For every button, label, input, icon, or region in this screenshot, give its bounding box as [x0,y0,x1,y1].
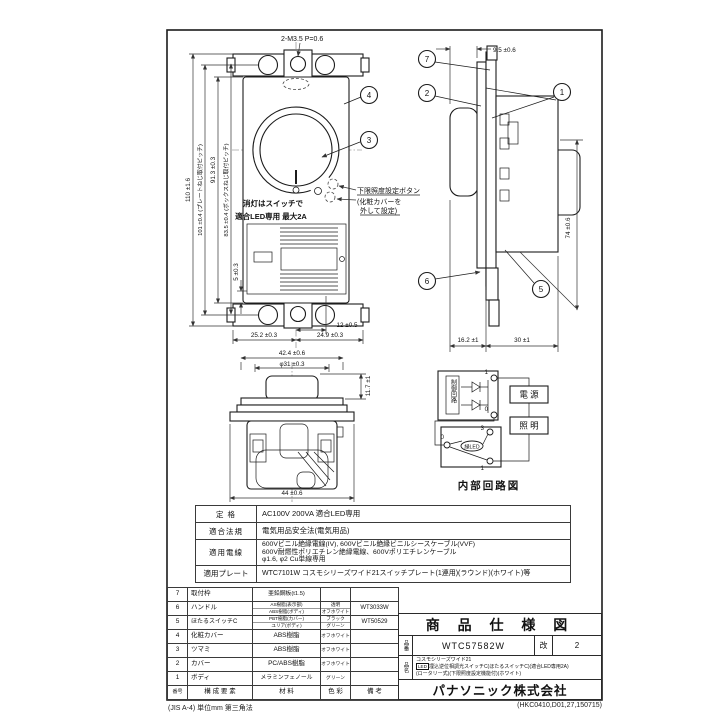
dim-label-phi31: φ31 ±0.3 [279,361,305,368]
control-box [438,371,498,420]
spec-label: 定 格 [196,506,257,523]
parts-header-row: 番号 構 成 要 素 材 料 色 彩 備 考 [168,686,399,700]
parts-header-color: 色 彩 [321,686,351,700]
footer-left: (JIS A-4) 単位mm 第三角法 [168,703,253,713]
note-line-3: 外して設定) [360,206,397,215]
product-name-row: 品名 コスモシリーズワイド21 LED埋込逆位相調光スイッチC(ほたるスイッチC… [399,656,601,680]
parts-row: 5 ほたるスイッチC PBT樹脂(カバー) ユリア(ボディ) ブラック グリーン… [168,616,399,630]
part-remark [351,644,399,658]
dim-label-424: 42.4 ±0.6 [279,350,306,357]
svg-text:3: 3 [367,136,372,145]
part-number-row: 品番 WTC57582W 改 2 [399,636,601,656]
knob-dome [266,376,318,400]
spec-value: WTC7101W コスモシリーズワイド21スイッチプレート(1連用)(ラウンド)… [257,565,571,582]
part-color: オフホワイト [321,658,351,672]
part-name: ツマミ [188,644,253,658]
led-tag: LED [416,663,429,670]
svg-text:7: 7 [425,55,430,64]
part-remark [351,672,399,686]
part-num: 4 [168,630,188,644]
spec-row: 定 格 AC100V 200VA 適合LED専用 [196,506,571,523]
device-label-led: 適合LED専用 最大2A [235,211,307,221]
dim-label-249: 24.9 ±0.3 [317,332,344,339]
plate-profile [477,62,486,268]
body-profile [496,96,558,252]
dim-label-12: 12 ±0.5 [337,322,358,329]
product-name: コスモシリーズワイド21 LED埋込逆位相調光スイッチC(ほたるスイッチC)(適… [413,656,601,679]
spec-label: 適用電線 [196,540,257,566]
part-color: ブラック グリーン [321,616,351,630]
part-color [321,588,351,602]
part-material: ABS樹脂 [253,644,321,658]
parts-row: 7 取付枠 亜鉛鋼板(t1.5) [168,588,399,602]
side-view: 9.5 ±0.6 74 ±0.6 16.2 ±1 30 ±1 7 [419,46,584,352]
part-num: 5 [168,616,188,630]
part-material: 亜鉛鋼板(t1.5) [253,588,321,602]
part-material: AS樹脂(表示部) ABS樹脂(ボディ) [253,602,321,616]
part-name: ハンドル [188,602,253,616]
parts-header-name: 構 成 要 素 [188,686,253,700]
spec-value-line: 600Vビニル絶縁電線(IV), 600Vビニル絶縁ビニルシースケーブル(VVF… [262,541,569,549]
spec-row: 適合法規 電気用品安全法(電気用品) [196,523,571,540]
part-remark [351,630,399,644]
frame-profile [486,52,496,286]
svg-text:4: 4 [367,91,372,100]
part-material: PC/ABS樹脂 [253,658,321,672]
drawing-title: 商 品 仕 様 図 [399,614,601,636]
control-label: 制御回路 [450,378,457,404]
parts-header-material: 材 料 [253,686,321,700]
dim-label-44: 44 ±0.6 [282,490,303,497]
dim-label-95: 9.5 ±0.6 [493,47,516,54]
part-num: 2 [168,658,188,672]
device-label-off: 消灯はスイッチで [243,198,303,208]
spec-value: AC100V 200VA 適合LED専用 [257,506,571,523]
spec-row: 適用電線 600Vビニル絶縁電線(IV), 600Vビニル絶縁ビニルシースケーブ… [196,540,571,566]
side-dim-95: 9.5 ±0.6 [436,46,516,104]
knob-profile [450,108,478,196]
part-number-label: 品番 [399,636,413,655]
parts-row: 4 化粧カバー ABS樹脂 オフホワイト [168,630,399,644]
part-color: オフホワイト [321,644,351,658]
dim-label-74: 74 ±0.6 [565,217,572,238]
part-remark [351,588,399,602]
part-name: ボディ [188,672,253,686]
terminal-0b-label: 0 [441,435,445,441]
part-num: 7 [168,588,188,602]
dim-label-835: 83.5 ±0.4 (ボックスねじ取付ピッチ) [222,143,230,236]
parts-row: 2 カバー PC/ABS樹脂 オフホワイト [168,658,399,672]
part-num: 6 [168,602,188,616]
callout-6: 6 [419,272,481,290]
revision-value: 2 [553,636,601,655]
part-name: カバー [188,658,253,672]
spec-label: 適合法規 [196,523,257,540]
part-remark: WT3033W [351,602,399,616]
product-name-line2: LED埋込逆位相調光スイッチC(ほたるスイッチC)(適合LED専用2A) [416,663,601,671]
company-name: パナソニック株式会社 [399,680,601,699]
note-line-1: 下限照度設定ボタン [357,186,420,195]
dim-label-252: 25.2 ±0.3 [251,332,278,339]
part-num: 1 [168,672,188,686]
part-remark: WT50529 [351,616,399,630]
part-color: グリーン [321,672,351,686]
circuit-diagram: 制御回路 1 0 3 1 0 緑LED 電 源 照 明 内部回路図 [435,370,548,492]
product-name-line3: (ロータリー式)(下限照度設定機能付)(ホワイト) [416,671,601,678]
spec-row: 適用プレート WTC7101W コスモシリーズワイド21スイッチプレート(1連用… [196,565,571,582]
svg-text:6: 6 [425,277,430,286]
part-color: オフホワイト [321,630,351,644]
parts-row: 6 ハンドル AS樹脂(表示部) ABS樹脂(ボディ) 透明 オフホワイト WT… [168,602,399,616]
dim-label-913: 91.3 ±0.3 [210,156,217,183]
title-block: 商 品 仕 様 図 品番 WTC57582W 改 2 品名 コスモシリーズワイド… [398,613,602,700]
part-material: ABS樹脂 [253,630,321,644]
parts-row: 1 ボディ メラミンフェノール グリーン [168,672,399,686]
part-name: 化粧カバー [188,630,253,644]
part-number: WTC57582W [413,636,534,655]
callout-5: 5 [505,250,550,298]
parts-table: 7 取付枠 亜鉛鋼板(t1.5) 6 ハンドル AS樹脂(表示部) ABS樹脂(… [167,587,399,700]
part-remark [351,658,399,672]
product-name-label: 品名 [399,656,413,679]
spec-table: 定 格 AC100V 200VA 適合LED専用 適合法規 電気用品安全法(電気… [195,505,571,583]
svg-text:2: 2 [425,89,430,98]
spec-drawing-sheet: 消灯はスイッチで 適合LED専用 最大2A [0,0,720,720]
part-material: PBT樹脂(カバー) ユリア(ボディ) [253,616,321,630]
revision-label: 改 [534,636,553,655]
dim-label-117: 11.7 ±1 [365,375,372,396]
circuit-caption: 内部回路図 [458,479,521,492]
part-name: ほたるスイッチC [188,616,253,630]
screw-note: 2-M3.5 P=0.6 [281,36,323,43]
light-label: 照 明 [519,421,538,431]
bottom-view: 42.4 ±0.6 φ31 ±0.3 11.7 ±1 44 ±0.6 [230,350,372,502]
dim-label-30: 30 ±1 [514,337,530,344]
dim-label-110: 110 ±1.6 [185,178,192,202]
parts-header-remark: 備 考 [351,686,399,700]
dim-label-101: 101 ±0.4 (プレートねじ取付ピッチ) [196,144,204,236]
part-material: メラミンフェノール [253,672,321,686]
front-view: 消灯はスイッチで 適合LED専用 最大2A [185,36,420,348]
part-name: 取付枠 [188,588,253,602]
green-led-label: 緑LED [464,442,480,450]
dim-label-162: 16.2 ±1 [458,337,479,344]
spec-label: 適用プレート [196,565,257,582]
parts-row: 3 ツマミ ABS樹脂 オフホワイト [168,644,399,658]
spec-value-line: φ1.6, φ2 Cu単線専用 [262,556,569,564]
svg-text:1: 1 [560,88,565,97]
spec-value: 電気用品安全法(電気用品) [257,523,571,540]
parts-header-num: 番号 [168,686,188,700]
switch-body [247,421,337,489]
footer-right: (HKC0410,D01,27,150715) [400,702,602,709]
svg-text:5: 5 [539,285,544,294]
dim-label-5: 5 ±0.3 [233,263,240,281]
part-num: 3 [168,644,188,658]
part-color: 透明 オフホワイト [321,602,351,616]
note-line-2: (化粧カバーを [357,197,401,206]
power-label: 電 源 [519,390,539,400]
flange [230,412,354,421]
spec-value: 600Vビニル絶縁電線(IV), 600Vビニル絶縁ビニルシースケーブル(VVF… [257,540,571,566]
